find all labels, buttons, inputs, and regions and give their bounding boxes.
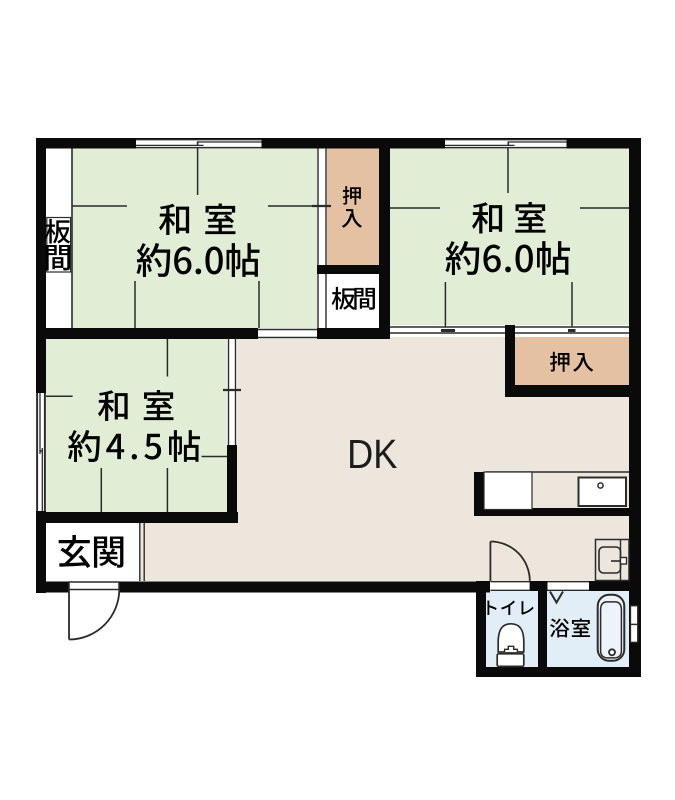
svg-text:DK: DK: [347, 432, 398, 477]
